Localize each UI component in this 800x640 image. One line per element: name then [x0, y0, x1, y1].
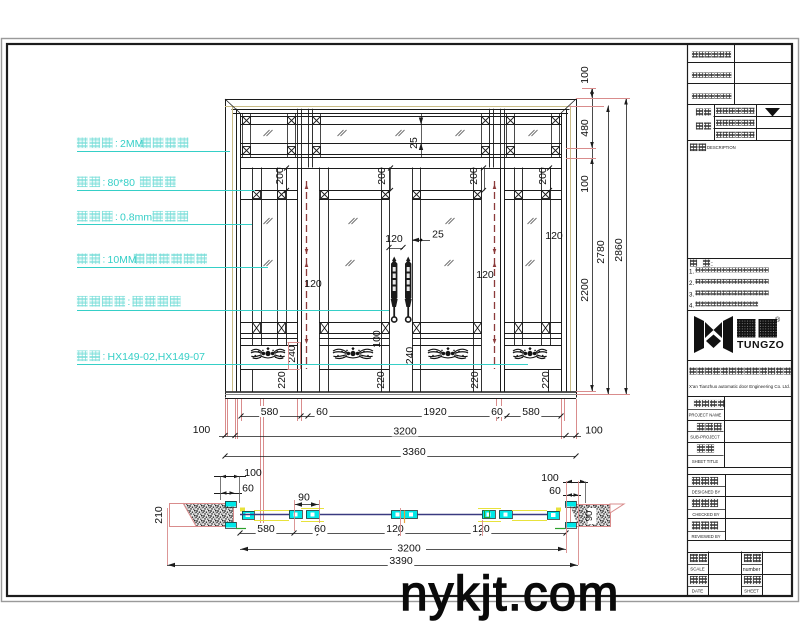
svg-text:120: 120 — [386, 523, 404, 535]
svg-text:580: 580 — [257, 523, 275, 535]
svg-text::: : — [103, 255, 106, 266]
svg-text:220: 220 — [276, 371, 288, 389]
svg-text:120: 120 — [476, 269, 494, 281]
svg-text:DESCRIPTION: DESCRIPTION — [707, 145, 736, 150]
svg-text:3.: 3. — [689, 291, 694, 298]
svg-text:210: 210 — [153, 506, 165, 524]
svg-text:220: 220 — [540, 371, 552, 389]
svg-text:2.: 2. — [689, 280, 694, 287]
svg-text:2200: 2200 — [579, 278, 591, 302]
svg-text::: : — [115, 212, 118, 223]
svg-text:90: 90 — [584, 511, 595, 522]
svg-text:SUB-PROJECT: SUB-PROJECT — [690, 435, 720, 440]
svg-text::: : — [115, 139, 118, 150]
svg-text:480: 480 — [579, 119, 591, 137]
svg-text:100: 100 — [541, 472, 559, 484]
svg-text:REVIEWED BY: REVIEWED BY — [691, 534, 720, 539]
svg-text:3360: 3360 — [402, 446, 426, 458]
svg-text:2780: 2780 — [595, 240, 607, 264]
svg-text:100: 100 — [244, 467, 262, 479]
svg-text:HX149-02,HX149-07: HX149-02,HX149-07 — [108, 351, 206, 363]
svg-text:120: 120 — [304, 278, 322, 290]
svg-text:nykjt.com: nykjt.com — [400, 567, 620, 621]
svg-text:580: 580 — [522, 406, 540, 418]
svg-text:TUNGZO: TUNGZO — [737, 339, 784, 351]
svg-text:1.: 1. — [689, 268, 694, 275]
svg-text::: : — [103, 352, 106, 363]
svg-text:60: 60 — [316, 406, 328, 418]
svg-text:120: 120 — [545, 230, 563, 242]
svg-text:200: 200 — [537, 167, 549, 185]
svg-text:60: 60 — [242, 483, 254, 495]
svg-text:2MM: 2MM — [120, 138, 143, 150]
svg-text:220: 220 — [375, 371, 387, 389]
svg-text:DATE: DATE — [692, 589, 703, 594]
svg-text:120: 120 — [385, 233, 403, 245]
svg-text::: : — [711, 261, 713, 268]
svg-text:60: 60 — [491, 406, 503, 418]
svg-text:PROJECT NAME: PROJECT NAME — [689, 413, 722, 418]
svg-text:200: 200 — [274, 167, 286, 185]
svg-text:240: 240 — [404, 347, 416, 365]
svg-text:580: 580 — [261, 406, 279, 418]
svg-text:1920: 1920 — [423, 406, 447, 418]
svg-text:200: 200 — [376, 167, 388, 185]
svg-text:3200: 3200 — [397, 543, 421, 555]
svg-text::: : — [128, 297, 131, 308]
svg-text:number: number — [743, 567, 761, 573]
svg-text:3390: 3390 — [389, 555, 413, 567]
svg-text:60: 60 — [314, 523, 326, 535]
svg-text:DESIGNED BY: DESIGNED BY — [692, 490, 721, 495]
svg-text:25: 25 — [432, 229, 444, 241]
svg-text:220: 220 — [469, 371, 481, 389]
svg-text::: : — [103, 178, 106, 189]
svg-text:CHECKED BY: CHECKED BY — [692, 512, 719, 517]
svg-text:10MM: 10MM — [108, 254, 137, 266]
svg-text:240: 240 — [286, 345, 298, 363]
svg-text:100: 100 — [579, 175, 591, 193]
svg-text:®: ® — [775, 316, 781, 324]
svg-text:60: 60 — [549, 485, 561, 497]
svg-text:X'an Tianzhuo automatic door E: X'an Tianzhuo automatic door Engineering… — [689, 384, 790, 390]
svg-text:0.8mm: 0.8mm — [120, 212, 152, 224]
svg-text:SCALE: SCALE — [690, 567, 704, 572]
svg-text:120: 120 — [472, 523, 490, 535]
svg-text:90: 90 — [298, 492, 310, 504]
svg-text:SHEET: SHEET — [744, 589, 759, 594]
svg-text:25: 25 — [408, 137, 420, 149]
svg-text:SHEET TITLE: SHEET TITLE — [692, 459, 719, 464]
svg-text:2860: 2860 — [613, 238, 625, 262]
svg-text:3200: 3200 — [393, 426, 417, 438]
svg-text:100: 100 — [371, 330, 383, 348]
svg-text:100: 100 — [193, 424, 211, 436]
svg-text:4.: 4. — [689, 302, 694, 309]
svg-text:200: 200 — [468, 167, 480, 185]
svg-text:80*80: 80*80 — [108, 177, 136, 189]
svg-text:100: 100 — [579, 66, 591, 84]
svg-text:100: 100 — [585, 425, 603, 437]
